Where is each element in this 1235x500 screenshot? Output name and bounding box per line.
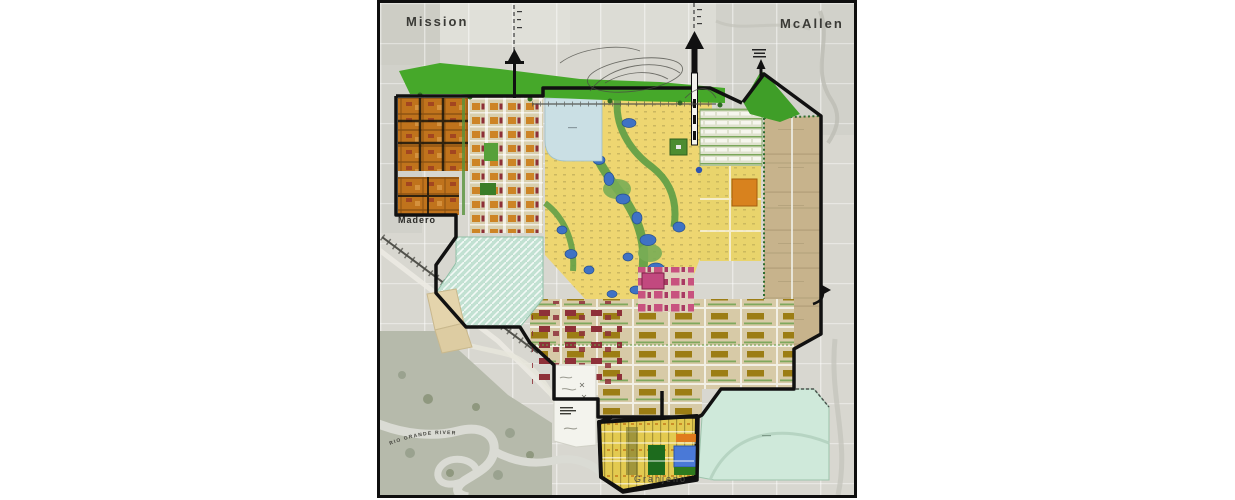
district-village-orange-south bbox=[398, 177, 459, 215]
village-label-granjeno: Granjeno bbox=[634, 474, 687, 484]
big-orange-parcel bbox=[732, 179, 757, 206]
city-label-mcallen: McAllen bbox=[780, 16, 844, 31]
pond-dot bbox=[696, 167, 702, 173]
district-mixed-blocks bbox=[462, 96, 543, 233]
page-canvas: RIO GRANDE RIVER bbox=[0, 0, 1235, 500]
master-plan-map: RIO GRANDE RIVER bbox=[377, 0, 857, 498]
map-graphic: RIO GRANDE RIVER bbox=[380, 3, 854, 495]
canal-basin bbox=[545, 98, 602, 161]
city-label-mission: Mission bbox=[406, 14, 468, 29]
park-square bbox=[670, 139, 687, 155]
district-row-blocks bbox=[700, 109, 762, 166]
flood-teal-area bbox=[698, 389, 829, 480]
village-label-madero: Madero bbox=[398, 215, 436, 225]
bridge-plaza-area bbox=[554, 365, 596, 447]
district-village-orange-north bbox=[398, 98, 468, 171]
district-pink-blocks bbox=[638, 267, 694, 312]
